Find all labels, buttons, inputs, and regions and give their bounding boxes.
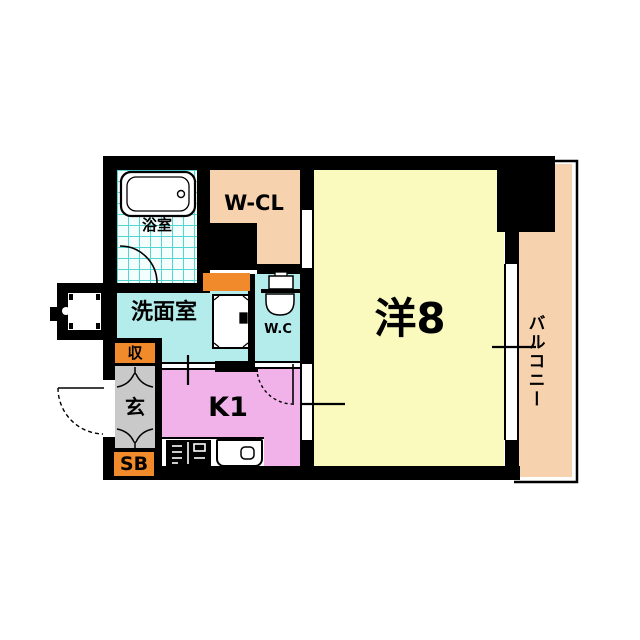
label-storage: 収 xyxy=(126,345,144,361)
label-shoe-box: SB xyxy=(114,454,154,474)
floorplan-canvas: 浴室 W-CL 洗面室 W.C 洋8 K1 玄 収 SB バルコニー xyxy=(0,0,640,640)
toilet-icon xyxy=(261,272,300,315)
label-kitchen: K1 xyxy=(202,392,254,422)
bath-door-arc xyxy=(120,246,157,283)
washing-machine-detail xyxy=(214,296,248,347)
label-washroom: 洗面室 xyxy=(118,301,210,325)
toilet-door-arc xyxy=(257,364,293,405)
sink-faucet xyxy=(241,447,254,459)
stove-detail xyxy=(172,442,205,464)
label-toilet: W.C xyxy=(258,321,298,337)
label-entrance: 玄 xyxy=(124,396,146,418)
entrance-door-arc xyxy=(58,388,104,434)
bathtub-icon xyxy=(121,172,195,216)
label-bath: 浴室 xyxy=(128,216,186,234)
label-western-room: 洋8 xyxy=(330,295,490,343)
label-walk-in-closet: W-CL xyxy=(214,192,294,214)
label-balcony: バルコニー xyxy=(524,266,544,456)
meter-box-detail xyxy=(62,294,100,329)
